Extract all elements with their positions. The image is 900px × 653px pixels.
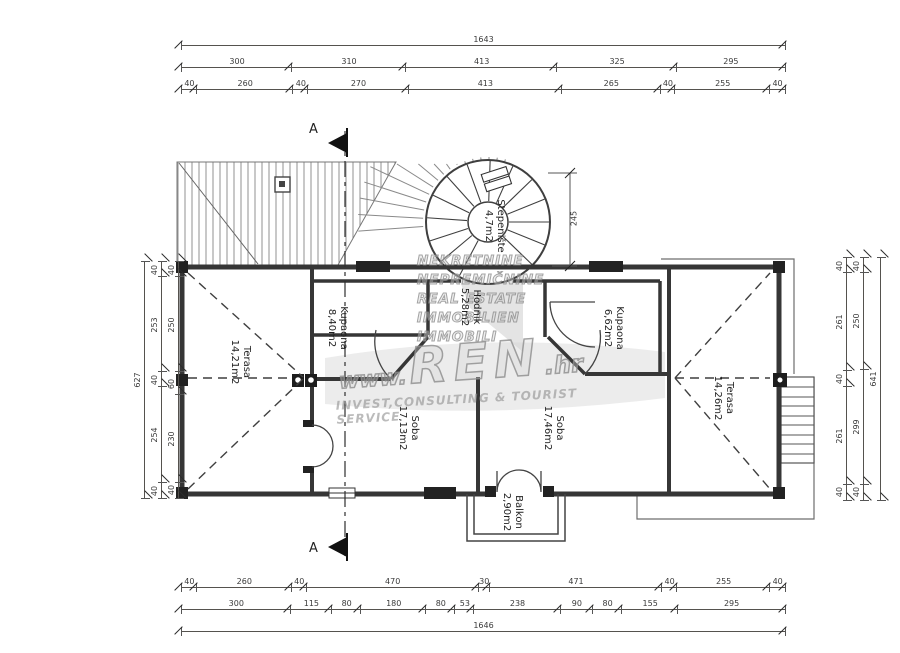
window-sill [424,487,456,499]
room-area: 17,13m2 [396,406,408,451]
room-name: Kupaona [613,306,625,349]
section-letter-bottom: A [309,541,318,556]
window-sill [589,261,623,272]
room-area: 4,7m2 [482,210,494,242]
dim-right-inner: 402614026140 [834,258,850,500]
dim-right-mid: 4025029940 [851,258,867,500]
room-name: Hodnik [470,290,482,325]
dim-top-row3: 40260402704132654025540 [182,76,785,92]
room-area: 14,21m2 [228,340,240,385]
room-name: Terasa [723,382,735,414]
dim-right-total: 641 [868,258,884,500]
dim-left-mid: 402534025440 [149,262,165,498]
room-label-kupaona-right: Kupaona 6,62m2 [599,291,627,365]
door-jamb [485,486,496,497]
dim-top-total: 1643 [182,32,785,48]
room-label-hodnik: Hodnik 5,28m2 [456,275,484,339]
roof-hatch [177,162,396,265]
room-name: Soba [408,416,420,441]
room-name: Kupaona [337,306,349,349]
dim-bottom-row1: 4026040470304714025540 [182,574,785,590]
dim-top-row2: 300310413325295 [182,54,785,70]
room-label-terasa-left: Terasa 14,21m2 [225,312,255,412]
door-jamb [303,420,314,427]
room-label-balkon: Balkon 2,90m2 [500,479,524,545]
room-area: 6,62m2 [601,309,613,347]
room-label-kupaona-left: Kupaona 8,40m2 [323,292,351,364]
dim-bottom-row2: 3001158018080532389080155295 [182,596,785,612]
room-label-soba-left: Soba 17,13m2 [394,389,422,467]
room-area: 8,40m2 [325,309,337,347]
room-name: Stepenište [494,199,506,252]
window-sill [356,261,390,272]
room-name: Soba [553,416,565,441]
room-area: 14,26m2 [711,376,723,421]
dim-left-inner: 402506023040 [166,262,182,498]
stair-dim-label: 245 [570,202,579,236]
room-name: Balkon [512,495,524,529]
floor-plan-sheet: NEKRETNINE NEPREMIČNINE REAL ESTATE IMMO… [0,0,900,653]
room-label-terasa-right: Terasa 14,26m2 [708,350,738,446]
section-arrow-top [328,133,347,153]
dim-left-total: 627 [132,262,148,498]
section-letter-top: A [309,122,318,137]
room-area: 17,46m2 [541,406,553,451]
door-jamb [543,486,554,497]
room-name: Terasa [240,346,252,378]
section-arrow-bottom [328,537,347,557]
room-area: 5,28m2 [458,288,470,326]
exterior-stair [781,377,814,463]
dim-bottom-total: 1646 [182,618,785,634]
room-label-soba-right: Soba 17,46m2 [539,389,567,467]
room-area: 2,90m2 [500,493,512,531]
room-label-stepeniste: Stepenište 4,7m2 [480,190,508,262]
